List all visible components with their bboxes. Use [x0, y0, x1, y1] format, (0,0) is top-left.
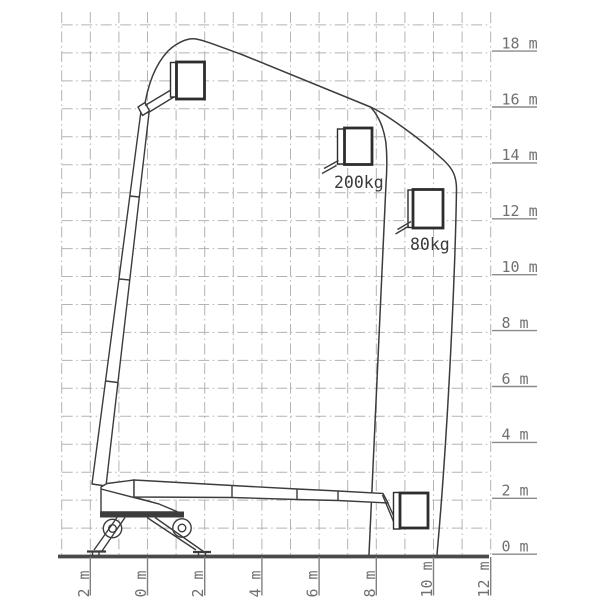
outreach-label-12m: 12 m [475, 561, 493, 597]
outreach-label-minus2m: 2 m [75, 570, 93, 597]
telescopic-boom-raised [92, 111, 149, 486]
height-label-8m: 8 m [502, 314, 529, 332]
height-axis: 18 m 16 m 14 m 12 m 10 m 8 m 6 m 4 m 2 m… [492, 34, 538, 555]
platform-basket-icon-200kg [322, 128, 372, 174]
envelope-diagram: 200kg 80kg 18 m 16 m 14 m 12 m 10 m 8 m … [0, 0, 600, 600]
height-label-2m: 2 m [502, 482, 529, 500]
height-label-18m: 18 m [502, 34, 538, 52]
boom-section-joint [130, 196, 140, 197]
height-label-14m: 14 m [502, 146, 538, 164]
height-label-0m: 0 m [502, 538, 529, 556]
chassis-bar [100, 512, 184, 518]
outreach-label-4m: 4 m [246, 570, 264, 597]
outreach-label-10m: 10 m [418, 561, 436, 597]
outreach-axis: 2 m 0 m 2 m 4 m 6 m 8 m 10 m 12 m [75, 561, 493, 597]
capacity-label-200kg: 200kg [334, 173, 384, 192]
outreach-label-0m: 0 m [132, 570, 150, 597]
platform-basket-icon-ground [394, 493, 429, 530]
jib-upper-line [145, 89, 173, 106]
outreach-label-8m: 8 m [361, 570, 379, 597]
platform-basket-icon-80kg [396, 190, 444, 235]
outreach-label-2m: 2 m [189, 570, 207, 597]
outreach-label-6m: 6 m [304, 570, 322, 597]
jib-lower-line [149, 96, 176, 113]
height-label-6m: 6 m [502, 370, 529, 388]
wheel-rear-hub [178, 524, 186, 532]
telescopic-boom-horizontal [134, 480, 388, 503]
height-label-16m: 16 m [502, 90, 538, 108]
platform-basket-icon-top [171, 62, 205, 99]
height-label-10m: 10 m [502, 258, 538, 276]
height-label-12m: 12 m [502, 202, 538, 220]
envelope-diagram-page: 200kg 80kg 18 m 16 m 14 m 12 m 10 m 8 m … [0, 0, 600, 600]
capacity-label-80kg: 80kg [410, 235, 450, 254]
height-label-4m: 4 m [502, 426, 529, 444]
envelope-outer-boundary [144, 39, 457, 555]
boom-section-joint [119, 279, 130, 280]
